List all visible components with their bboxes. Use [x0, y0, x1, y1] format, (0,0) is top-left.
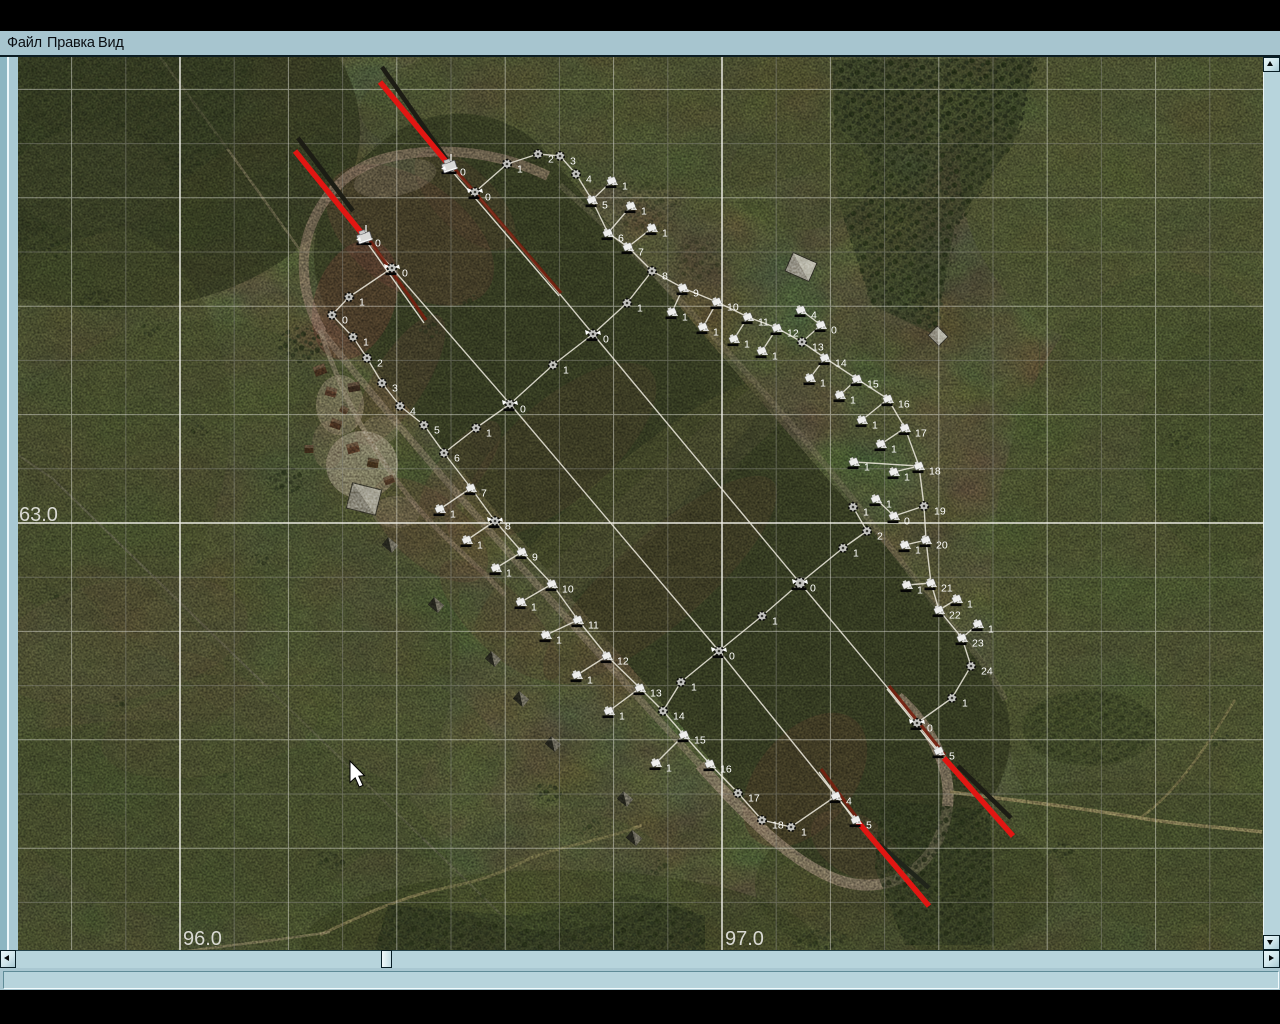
svg-text:1: 1	[359, 297, 365, 309]
svg-text:5: 5	[949, 751, 955, 763]
svg-text:6: 6	[618, 233, 624, 245]
svg-text:0: 0	[810, 583, 816, 595]
svg-text:1: 1	[556, 635, 562, 647]
svg-text:1: 1	[891, 444, 897, 456]
svg-text:18: 18	[772, 820, 784, 832]
svg-text:1: 1	[864, 462, 870, 474]
svg-text:3: 3	[570, 156, 576, 168]
svg-text:10: 10	[562, 584, 574, 596]
svg-text:6: 6	[454, 453, 460, 465]
svg-text:0: 0	[520, 404, 526, 416]
svg-text:1: 1	[915, 545, 921, 557]
svg-text:1: 1	[517, 164, 523, 176]
svg-text:1: 1	[486, 428, 492, 440]
svg-text:1: 1	[587, 675, 593, 687]
svg-text:0: 0	[729, 651, 735, 663]
svg-text:17: 17	[915, 428, 927, 440]
svg-text:15: 15	[867, 379, 879, 391]
svg-text:1: 1	[637, 303, 643, 315]
svg-text:1: 1	[641, 206, 647, 218]
svg-text:8: 8	[662, 271, 668, 283]
svg-text:0: 0	[342, 315, 348, 327]
svg-text:23: 23	[972, 638, 984, 650]
svg-text:4: 4	[410, 406, 416, 418]
svg-text:0: 0	[402, 268, 408, 280]
svg-text:16: 16	[720, 764, 732, 776]
svg-text:1: 1	[563, 365, 569, 377]
svg-text:63.0: 63.0	[19, 504, 58, 526]
svg-text:2: 2	[877, 531, 883, 543]
svg-text:20: 20	[936, 540, 948, 552]
svg-text:4: 4	[811, 310, 817, 322]
svg-text:0: 0	[375, 238, 381, 250]
svg-text:1: 1	[772, 351, 778, 363]
svg-text:4: 4	[846, 796, 852, 808]
svg-text:8: 8	[505, 521, 511, 533]
svg-text:13: 13	[650, 688, 662, 700]
svg-text:15: 15	[694, 735, 706, 747]
svg-text:96.0: 96.0	[183, 928, 222, 950]
svg-text:5: 5	[866, 820, 872, 832]
svg-text:12: 12	[617, 656, 629, 668]
svg-text:11: 11	[588, 620, 599, 632]
svg-text:1: 1	[962, 698, 968, 710]
svg-text:7: 7	[481, 488, 487, 500]
svg-text:1: 1	[967, 599, 973, 611]
svg-text:1: 1	[820, 378, 826, 390]
svg-text:1: 1	[506, 568, 512, 580]
svg-text:4: 4	[586, 174, 592, 186]
svg-text:1: 1	[619, 711, 625, 723]
svg-text:19: 19	[934, 506, 946, 518]
svg-text:1: 1	[713, 327, 719, 339]
svg-text:2: 2	[548, 154, 554, 166]
svg-text:2: 2	[377, 358, 383, 370]
svg-text:5: 5	[434, 425, 440, 437]
svg-text:10: 10	[727, 302, 739, 314]
svg-text:1: 1	[622, 181, 628, 193]
svg-text:1: 1	[772, 616, 778, 628]
svg-text:1: 1	[863, 507, 869, 519]
svg-text:14: 14	[835, 358, 847, 370]
svg-text:22: 22	[949, 610, 961, 622]
svg-text:1: 1	[666, 763, 672, 775]
svg-text:0: 0	[927, 723, 933, 735]
svg-text:1: 1	[450, 509, 456, 521]
svg-text:1: 1	[850, 395, 856, 407]
svg-text:1: 1	[904, 472, 910, 484]
svg-text:3: 3	[392, 383, 398, 395]
svg-text:1: 1	[988, 624, 994, 636]
svg-text:1: 1	[363, 337, 369, 349]
svg-text:1: 1	[801, 827, 807, 839]
svg-text:0: 0	[831, 325, 837, 337]
svg-text:1: 1	[531, 602, 537, 614]
svg-text:24: 24	[981, 666, 993, 678]
svg-text:0: 0	[904, 516, 910, 528]
svg-text:12: 12	[787, 328, 799, 340]
svg-text:1: 1	[744, 339, 750, 351]
svg-text:17: 17	[748, 793, 760, 805]
svg-text:1: 1	[917, 585, 923, 597]
svg-text:1: 1	[853, 548, 859, 560]
svg-text:97.0: 97.0	[725, 928, 764, 950]
svg-text:1: 1	[872, 420, 878, 432]
svg-text:13: 13	[812, 342, 824, 354]
svg-text:0: 0	[603, 334, 609, 346]
svg-text:1: 1	[691, 682, 697, 694]
svg-text:1: 1	[477, 540, 483, 552]
svg-text:0: 0	[460, 167, 466, 179]
svg-text:14: 14	[673, 711, 685, 723]
svg-text:9: 9	[532, 552, 538, 564]
svg-text:0: 0	[485, 192, 491, 204]
svg-text:5: 5	[602, 200, 608, 212]
svg-text:1: 1	[662, 228, 668, 240]
svg-text:1: 1	[886, 499, 892, 511]
svg-text:9: 9	[693, 288, 699, 300]
svg-text:1: 1	[682, 312, 688, 324]
svg-text:11: 11	[758, 317, 769, 329]
svg-text:21: 21	[941, 583, 953, 595]
svg-text:16: 16	[898, 399, 910, 411]
svg-text:18: 18	[929, 466, 941, 478]
svg-text:7: 7	[638, 247, 644, 259]
